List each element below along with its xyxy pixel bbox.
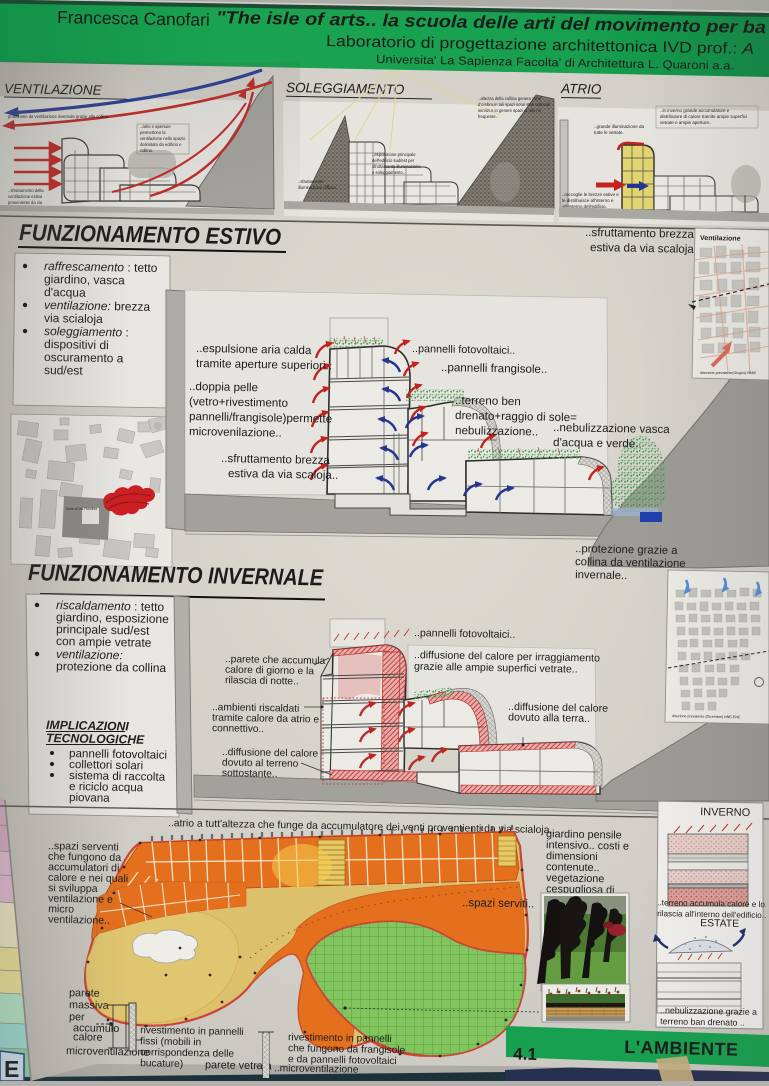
svg-text:..sfruttamento: ..sfruttamento bbox=[298, 179, 324, 184]
svg-text:SOLEGGIAMENTO: SOLEGGIAMENTO bbox=[286, 80, 405, 97]
svg-text:e da pannelli fotovoltaici: e da pannelli fotovoltaici bbox=[288, 1054, 397, 1067]
svg-text:..altezza della collina genera: ..altezza della collina genera zone bbox=[478, 96, 542, 101]
svg-text:frequente..: frequente.. bbox=[478, 114, 498, 119]
svg-text:tramite aperture superiori..: tramite aperture superiori.. bbox=[196, 357, 332, 372]
svg-text:d'ombra,in tali spazi sono sta: d'ombra,in tali spazi sono stati colloca… bbox=[478, 102, 550, 107]
svg-text:invernale..: invernale.. bbox=[575, 569, 627, 582]
svg-text:..pannelli frangisole..: ..pannelli frangisole.. bbox=[441, 361, 548, 376]
svg-text:servizi e in genere spazi di u: servizi e in genere spazi di uso no bbox=[478, 108, 542, 113]
svg-text:4.1: 4.1 bbox=[513, 1044, 537, 1064]
svg-text:e soleggiamento..: e soleggiamento.. bbox=[372, 170, 405, 175]
svg-text:..pannelli fotovoltaici..: ..pannelli fotovoltaici.. bbox=[412, 343, 515, 357]
svg-text:estiva da via scaloja..: estiva da via scaloja.. bbox=[228, 467, 338, 482]
svg-text:..espulsione aria calda: ..espulsione aria calda bbox=[196, 342, 312, 357]
svg-text:ATRIO: ATRIO bbox=[560, 81, 602, 97]
svg-text:Francesca Canofari: Francesca Canofari bbox=[57, 7, 210, 30]
svg-text:..raccoglie le brezze estive e: ..raccoglie le brezze estive e bbox=[562, 192, 619, 197]
svg-text:..esposizione principale: ..esposizione principale bbox=[372, 152, 416, 157]
svg-text:(vetro+rivestimento: (vetro+rivestimento bbox=[189, 395, 288, 410]
svg-text:illuminazione diffusa.: illuminazione diffusa. bbox=[298, 185, 337, 190]
svg-text:tutte le vetrate.: tutte le vetrate. bbox=[594, 130, 624, 135]
svg-text:d'acqua e verde..: d'acqua e verde.. bbox=[553, 436, 642, 451]
svg-text:dell'edificio sud/est per: dell'edificio sud/est per bbox=[372, 158, 415, 163]
svg-text:..terreno ben: ..terreno ben bbox=[455, 394, 521, 408]
svg-text:..grande illuminazione da: ..grande illuminazione da bbox=[594, 124, 645, 129]
svg-text:nebulizzazione..: nebulizzazione.. bbox=[455, 424, 538, 439]
svg-text:sottostante..: sottostante.. bbox=[222, 768, 278, 780]
svg-text:microvenilazione..: microvenilazione.. bbox=[189, 425, 282, 440]
svg-text:rilascia di notte..: rilascia di notte.. bbox=[225, 675, 299, 687]
svg-text:bucature): bucature) bbox=[140, 1058, 183, 1070]
svg-text:le distribuisce all'interno e: le distribuisce all'interno e bbox=[562, 198, 614, 203]
svg-text:pannelli/frangisole)permette: pannelli/frangisole)permette bbox=[189, 410, 332, 426]
svg-text:..sfruttamento brezza: ..sfruttamento brezza bbox=[221, 452, 331, 467]
svg-text:..spazi serviti..: ..spazi serviti.. bbox=[462, 897, 534, 910]
svg-text:dovuto alla terra..: dovuto alla terra.. bbox=[508, 711, 590, 724]
svg-text:connettivo..: connettivo.. bbox=[212, 723, 264, 735]
svg-text:sfruttamento illuminazione: sfruttamento illuminazione bbox=[372, 164, 421, 169]
svg-text:..doppia pelle: ..doppia pelle bbox=[189, 380, 258, 394]
svg-text:..pannelli fotovoltaici..: ..pannelli fotovoltaici.. bbox=[414, 627, 515, 641]
